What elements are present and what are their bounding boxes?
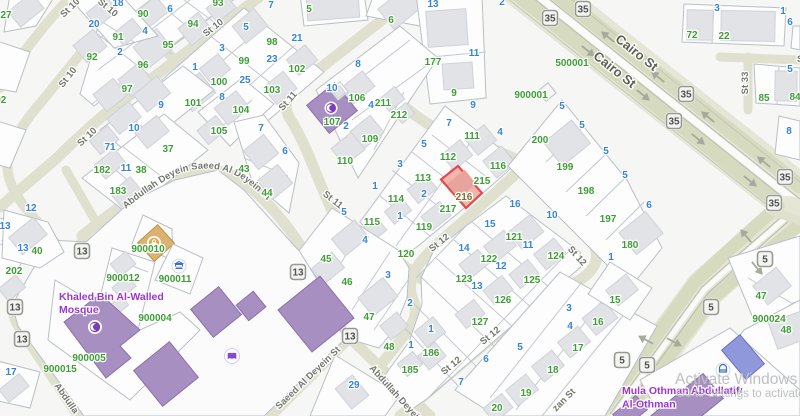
svg-text:Go to Settings to activate W: Go to Settings to activate W <box>676 388 800 400</box>
svg-text:1: 1 <box>192 62 198 73</box>
svg-text:900004: 900004 <box>138 313 172 324</box>
svg-text:101: 101 <box>185 98 202 109</box>
svg-text:13: 13 <box>471 281 483 292</box>
svg-text:3: 3 <box>397 159 403 170</box>
svg-text:7: 7 <box>446 118 452 129</box>
svg-text:22: 22 <box>718 31 730 42</box>
svg-text:16: 16 <box>509 199 521 210</box>
svg-text:6: 6 <box>282 146 288 157</box>
svg-text:11: 11 <box>523 240 534 251</box>
svg-text:102: 102 <box>0 95 7 106</box>
svg-text:44: 44 <box>261 188 273 199</box>
svg-text:124: 124 <box>548 251 565 262</box>
svg-text:71: 71 <box>104 142 116 153</box>
svg-text:99: 99 <box>238 56 250 67</box>
svg-text:13: 13 <box>0 221 11 232</box>
svg-text:90: 90 <box>137 9 149 20</box>
svg-text:13: 13 <box>344 332 356 343</box>
svg-text:5: 5 <box>243 22 249 33</box>
svg-text:40: 40 <box>31 246 43 257</box>
svg-text:97: 97 <box>121 84 133 95</box>
svg-text:113: 113 <box>415 173 432 184</box>
svg-text:7: 7 <box>458 377 464 388</box>
svg-text:48: 48 <box>780 325 792 336</box>
svg-text:14: 14 <box>458 243 470 254</box>
svg-text:18: 18 <box>112 0 124 9</box>
svg-text:6: 6 <box>787 17 793 28</box>
svg-text:1: 1 <box>397 211 403 222</box>
svg-text:900011: 900011 <box>159 274 192 285</box>
svg-text:15: 15 <box>609 295 621 306</box>
svg-text:120: 120 <box>398 249 415 260</box>
svg-text:93: 93 <box>212 0 224 9</box>
svg-text:198: 198 <box>578 186 595 197</box>
svg-text:38: 38 <box>135 165 147 176</box>
svg-text:5: 5 <box>762 255 768 266</box>
svg-text:185: 185 <box>402 365 419 376</box>
svg-text:98: 98 <box>266 37 278 48</box>
svg-text:500001: 500001 <box>555 58 589 69</box>
svg-text:116: 116 <box>490 161 507 172</box>
svg-text:197: 197 <box>600 214 617 225</box>
svg-text:104: 104 <box>233 105 250 116</box>
svg-text:5: 5 <box>644 361 650 372</box>
svg-text:2: 2 <box>407 298 413 309</box>
svg-text:Al-Othman: Al-Othman <box>622 399 676 411</box>
svg-text:13: 13 <box>76 247 88 258</box>
svg-text:199: 199 <box>557 162 574 173</box>
svg-text:900015: 900015 <box>43 364 77 375</box>
svg-text:3: 3 <box>714 3 720 14</box>
svg-text:94: 94 <box>187 19 199 30</box>
svg-text:183: 183 <box>110 186 127 197</box>
svg-text:900010: 900010 <box>131 244 165 255</box>
svg-text:126: 126 <box>495 295 512 306</box>
svg-text:2: 2 <box>421 189 427 200</box>
svg-text:212: 212 <box>391 110 408 121</box>
svg-text:5: 5 <box>708 303 714 314</box>
svg-text:1: 1 <box>428 324 434 335</box>
svg-text:17: 17 <box>5 367 17 378</box>
svg-text:110: 110 <box>337 156 354 167</box>
svg-text:85: 85 <box>758 93 770 104</box>
svg-text:45: 45 <box>320 254 332 265</box>
svg-text:84: 84 <box>789 92 800 103</box>
svg-text:5: 5 <box>622 170 628 181</box>
svg-text:10: 10 <box>326 83 338 94</box>
svg-text:900024: 900024 <box>752 314 786 325</box>
svg-text:182: 182 <box>94 165 111 176</box>
svg-text:9: 9 <box>158 100 164 111</box>
svg-text:5: 5 <box>341 207 347 218</box>
svg-text:20: 20 <box>491 403 503 414</box>
svg-text:47: 47 <box>363 312 375 323</box>
svg-text:St 33: St 33 <box>740 72 751 95</box>
svg-text:Activate Windows: Activate Windows <box>675 371 798 388</box>
svg-text:900005: 900005 <box>72 353 106 364</box>
svg-text:92: 92 <box>86 52 98 63</box>
svg-text:35: 35 <box>779 173 791 184</box>
svg-text:Mosque: Mosque <box>59 304 99 316</box>
svg-text:5: 5 <box>421 139 427 150</box>
svg-text:3: 3 <box>385 270 391 281</box>
svg-text:9: 9 <box>470 100 476 111</box>
svg-text:17: 17 <box>572 343 584 354</box>
svg-text:8: 8 <box>786 126 792 137</box>
svg-text:1: 1 <box>372 181 378 192</box>
svg-text:186: 186 <box>423 348 440 359</box>
svg-text:16: 16 <box>592 317 604 328</box>
svg-text:3: 3 <box>219 43 225 54</box>
svg-text:48: 48 <box>383 342 395 353</box>
svg-text:9: 9 <box>451 88 457 99</box>
svg-text:4: 4 <box>142 26 148 37</box>
svg-text:6: 6 <box>646 200 652 211</box>
svg-text:127: 127 <box>472 317 489 328</box>
svg-text:4: 4 <box>567 321 573 332</box>
svg-text:13: 13 <box>16 335 28 346</box>
svg-text:6: 6 <box>167 4 173 15</box>
svg-text:35: 35 <box>680 90 692 101</box>
svg-text:2: 2 <box>343 121 349 132</box>
svg-text:217: 217 <box>440 204 457 215</box>
svg-text:6: 6 <box>388 15 394 26</box>
svg-text:27: 27 <box>0 10 12 21</box>
svg-text:6: 6 <box>483 354 489 365</box>
svg-text:177: 177 <box>425 57 442 68</box>
svg-text:15: 15 <box>484 219 496 230</box>
svg-text:112: 112 <box>440 152 457 163</box>
svg-text:900012: 900012 <box>106 273 140 284</box>
svg-text:5: 5 <box>603 146 609 157</box>
svg-text:10: 10 <box>128 123 140 134</box>
svg-text:91: 91 <box>112 32 124 43</box>
svg-text:72: 72 <box>686 30 698 41</box>
svg-text:47: 47 <box>755 291 767 302</box>
svg-text:12: 12 <box>495 261 507 272</box>
svg-text:180: 180 <box>622 240 639 251</box>
svg-text:202: 202 <box>6 266 23 277</box>
svg-text:115: 115 <box>364 217 381 228</box>
svg-text:1: 1 <box>780 6 786 17</box>
svg-text:12: 12 <box>25 203 37 214</box>
svg-text:4: 4 <box>497 127 503 138</box>
svg-text:211: 211 <box>375 98 392 109</box>
svg-text:114: 114 <box>388 194 405 205</box>
svg-text:4: 4 <box>368 100 374 111</box>
svg-text:11: 11 <box>121 163 132 174</box>
svg-text:13: 13 <box>427 0 439 10</box>
svg-text:20: 20 <box>88 19 100 30</box>
svg-text:23: 23 <box>266 54 278 65</box>
svg-text:19: 19 <box>520 388 532 399</box>
svg-text:43: 43 <box>238 164 250 175</box>
svg-text:35: 35 <box>544 14 556 25</box>
svg-text:18: 18 <box>547 365 559 376</box>
svg-text:900001: 900001 <box>514 90 548 101</box>
svg-text:105: 105 <box>211 126 228 137</box>
svg-text:Khaled Bin Al-Walled: Khaled Bin Al-Walled <box>59 291 164 303</box>
svg-text:10: 10 <box>546 210 558 221</box>
svg-text:103: 103 <box>264 85 281 96</box>
svg-text:5: 5 <box>619 356 625 367</box>
svg-text:21: 21 <box>291 33 303 44</box>
svg-text:5: 5 <box>306 4 312 15</box>
svg-text:5: 5 <box>517 342 523 353</box>
svg-text:29: 29 <box>348 380 360 391</box>
svg-text:123: 123 <box>456 274 473 285</box>
svg-text:5: 5 <box>787 64 793 75</box>
svg-text:35: 35 <box>768 199 780 210</box>
svg-text:107: 107 <box>324 117 341 128</box>
svg-text:1: 1 <box>608 252 614 263</box>
svg-text:5: 5 <box>559 101 565 112</box>
svg-text:13: 13 <box>17 243 29 254</box>
svg-text:11: 11 <box>469 48 480 59</box>
svg-text:46: 46 <box>341 277 353 288</box>
svg-text:2: 2 <box>499 0 505 8</box>
svg-text:1: 1 <box>408 340 414 351</box>
svg-text:13: 13 <box>9 303 21 314</box>
svg-text:216: 216 <box>456 192 473 203</box>
svg-text:7: 7 <box>258 123 264 134</box>
svg-text:95: 95 <box>162 40 174 51</box>
svg-text:121: 121 <box>506 232 523 243</box>
svg-text:25: 25 <box>239 75 251 86</box>
svg-text:35: 35 <box>668 117 680 128</box>
svg-text:37: 37 <box>162 144 174 155</box>
svg-text:3: 3 <box>566 303 572 314</box>
svg-text:125: 125 <box>524 275 541 286</box>
svg-text:200: 200 <box>532 135 549 146</box>
svg-text:4: 4 <box>362 235 368 246</box>
svg-text:8: 8 <box>219 92 225 103</box>
svg-text:100: 100 <box>211 77 228 88</box>
svg-text:109: 109 <box>362 134 379 145</box>
svg-text:111: 111 <box>464 131 480 142</box>
svg-text:7: 7 <box>268 0 274 11</box>
svg-text:35: 35 <box>577 5 589 16</box>
svg-text:2: 2 <box>117 47 123 58</box>
svg-text:119: 119 <box>416 222 433 233</box>
svg-text:96: 96 <box>137 60 149 71</box>
svg-text:13: 13 <box>292 268 304 279</box>
svg-text:102: 102 <box>289 64 306 75</box>
svg-text:5: 5 <box>579 120 585 131</box>
svg-text:106: 106 <box>349 93 366 104</box>
svg-text:8: 8 <box>355 59 361 70</box>
svg-text:215: 215 <box>474 176 491 187</box>
